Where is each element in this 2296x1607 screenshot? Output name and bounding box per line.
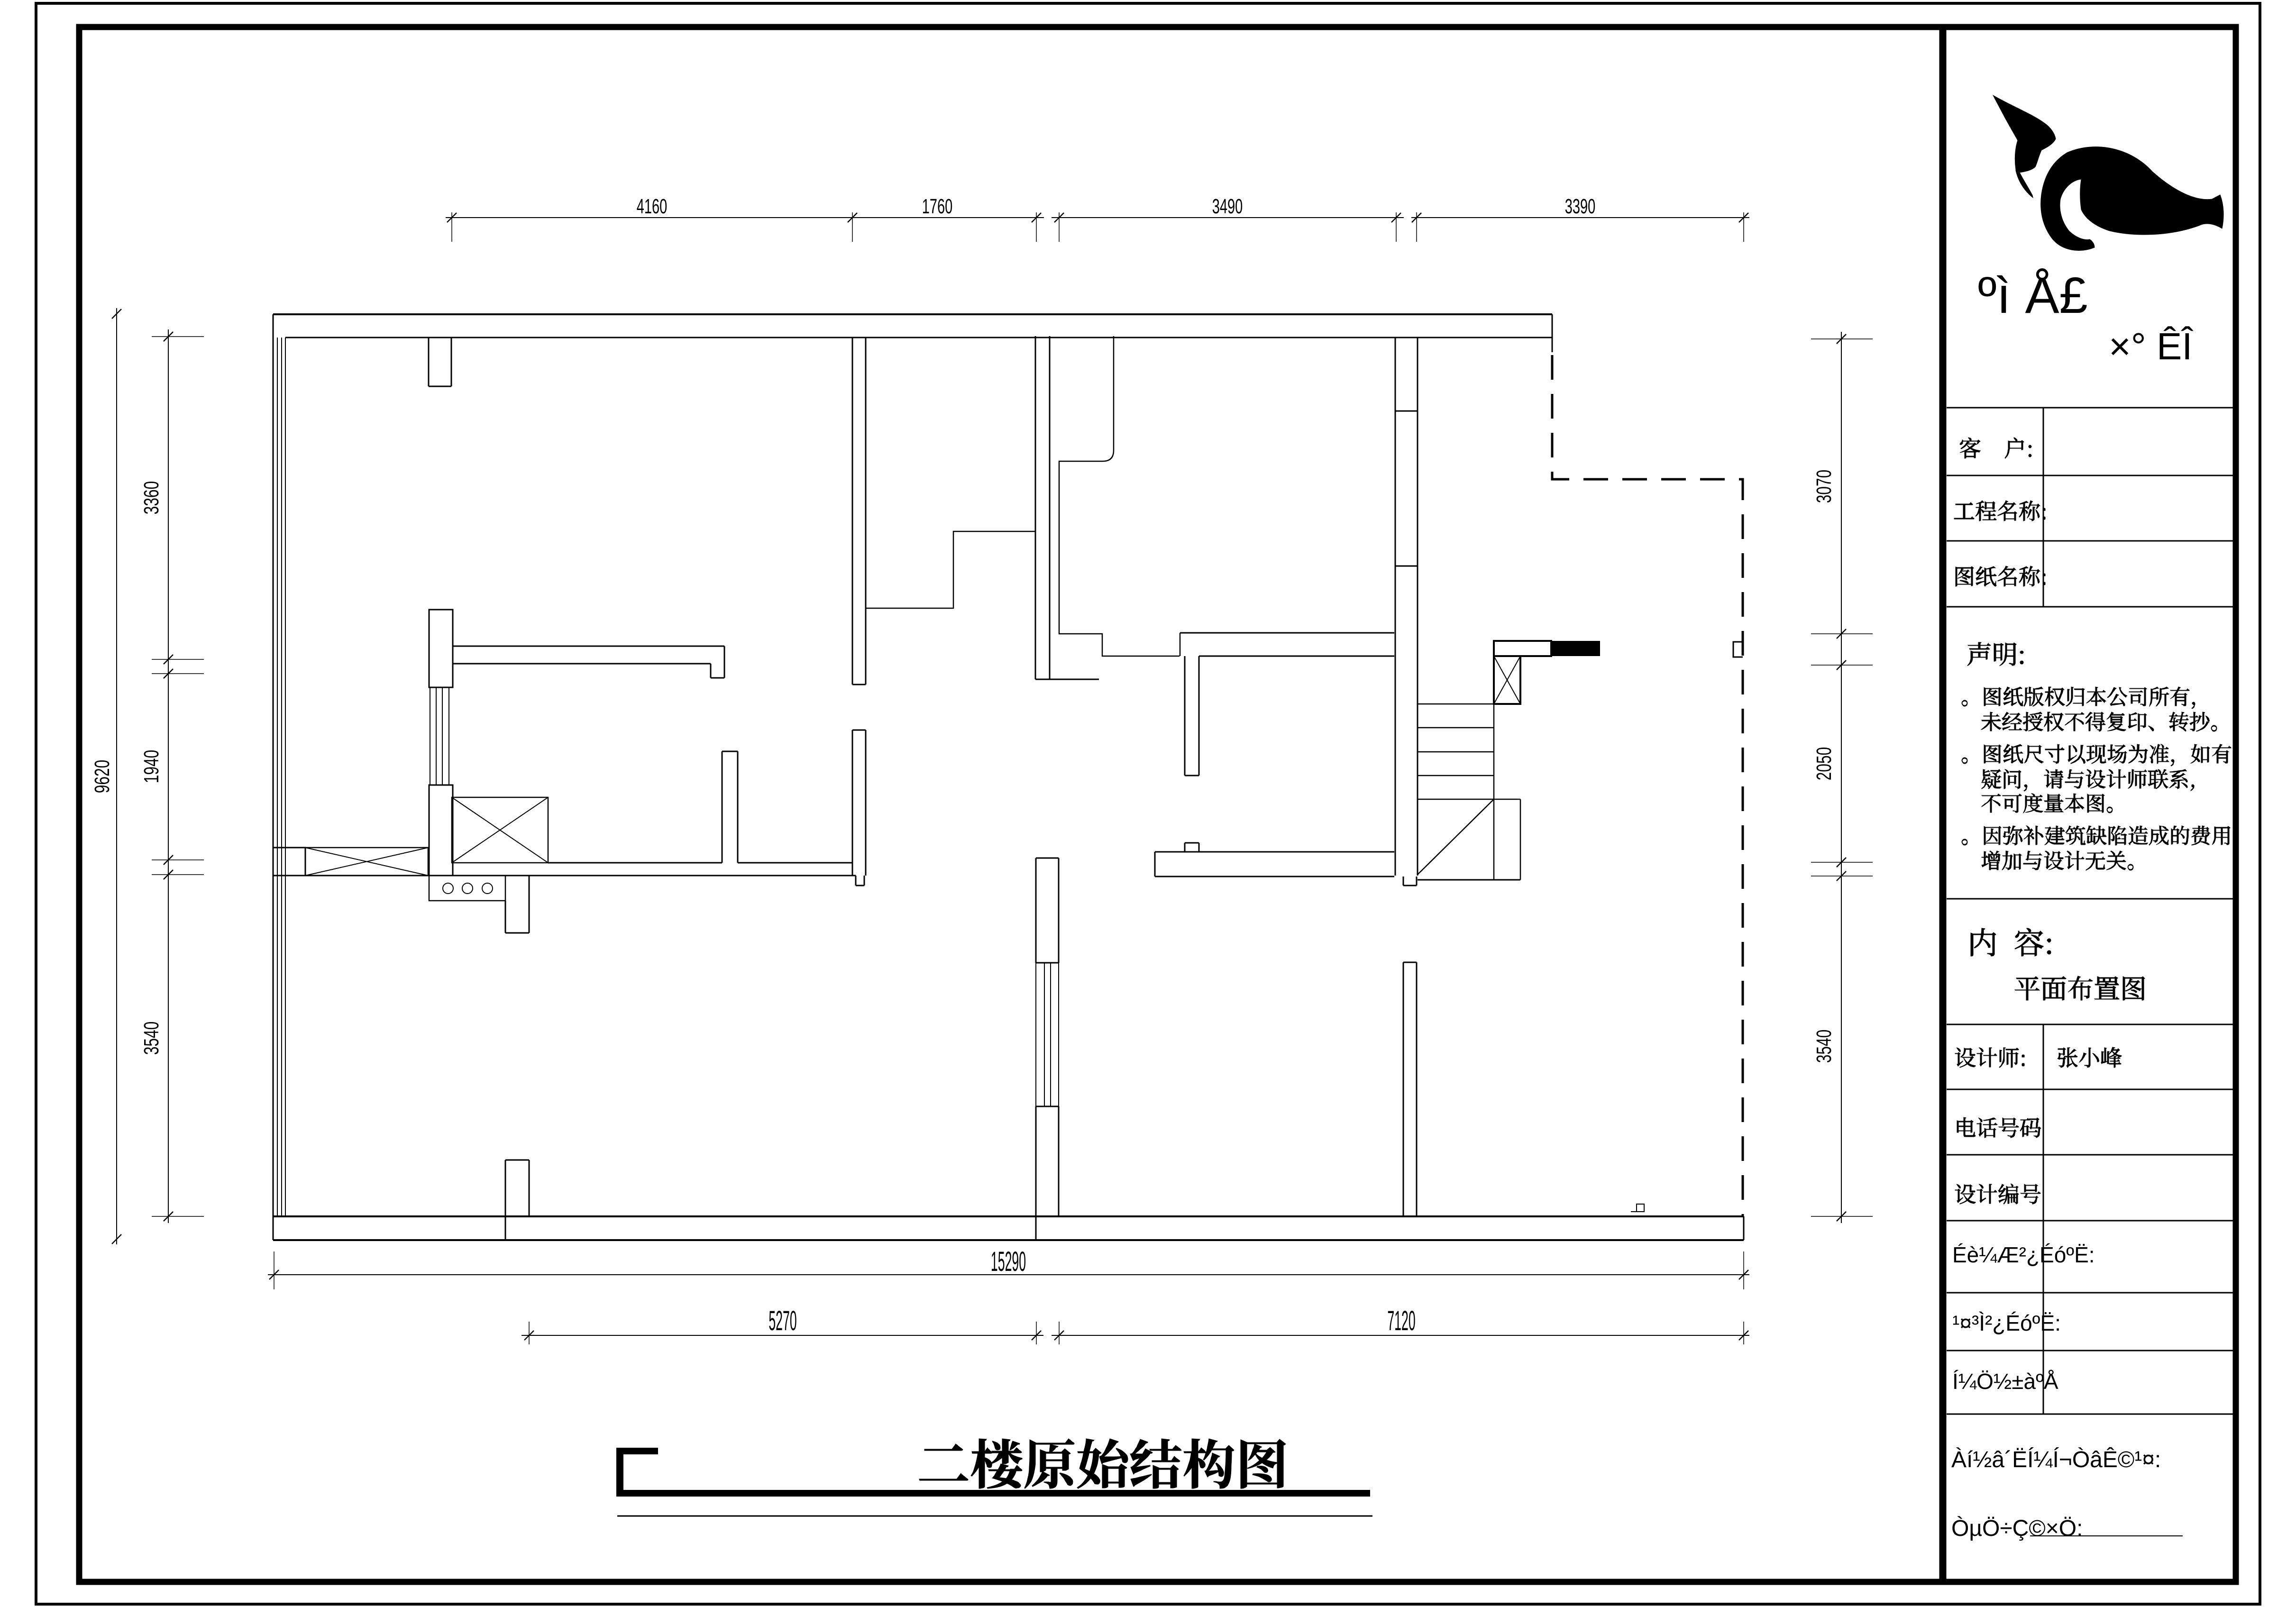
svg-text:¹¤³Ì²¿ÉóºË:: ¹¤³Ì²¿ÉóºË: [1952, 1311, 2061, 1335]
svg-text:3070: 3070 [1812, 470, 1836, 503]
svg-text:3490: 3490 [1212, 194, 1243, 218]
svg-text:3360: 3360 [140, 481, 163, 514]
svg-text:Í¼Ö½±àºÅ: Í¼Ö½±àºÅ [1952, 1369, 2058, 1394]
svg-text:5270: 5270 [768, 1305, 796, 1336]
svg-text:15290: 15290 [991, 1246, 1026, 1277]
svg-text:3540: 3540 [140, 1022, 163, 1055]
svg-text:4160: 4160 [637, 194, 668, 218]
svg-text:ºì Å£: ºì Å£ [1978, 266, 2088, 324]
svg-text:1940: 1940 [140, 750, 163, 783]
svg-text:3390: 3390 [1565, 194, 1596, 218]
svg-text:1760: 1760 [922, 194, 953, 218]
svg-text:Àí½â´ËÍ¼Í¬ÒâÊ©¹¤:: Àí½â´ËÍ¼Í¬ÒâÊ©¹¤: [1951, 1447, 2161, 1472]
svg-text:3540: 3540 [1812, 1030, 1836, 1063]
svg-text:9620: 9620 [91, 760, 114, 793]
svg-text:×° ÊÎ: ×° ÊÎ [2109, 325, 2194, 367]
svg-text:Éè¼Æ²¿ÉóºË:: Éè¼Æ²¿ÉóºË: [1952, 1242, 2095, 1267]
svg-text:7120: 7120 [1387, 1305, 1415, 1336]
svg-text:ÒµÖ÷Ç©×Ö:: ÒµÖ÷Ç©×Ö: [1951, 1516, 2083, 1541]
svg-text:2050: 2050 [1812, 747, 1836, 780]
